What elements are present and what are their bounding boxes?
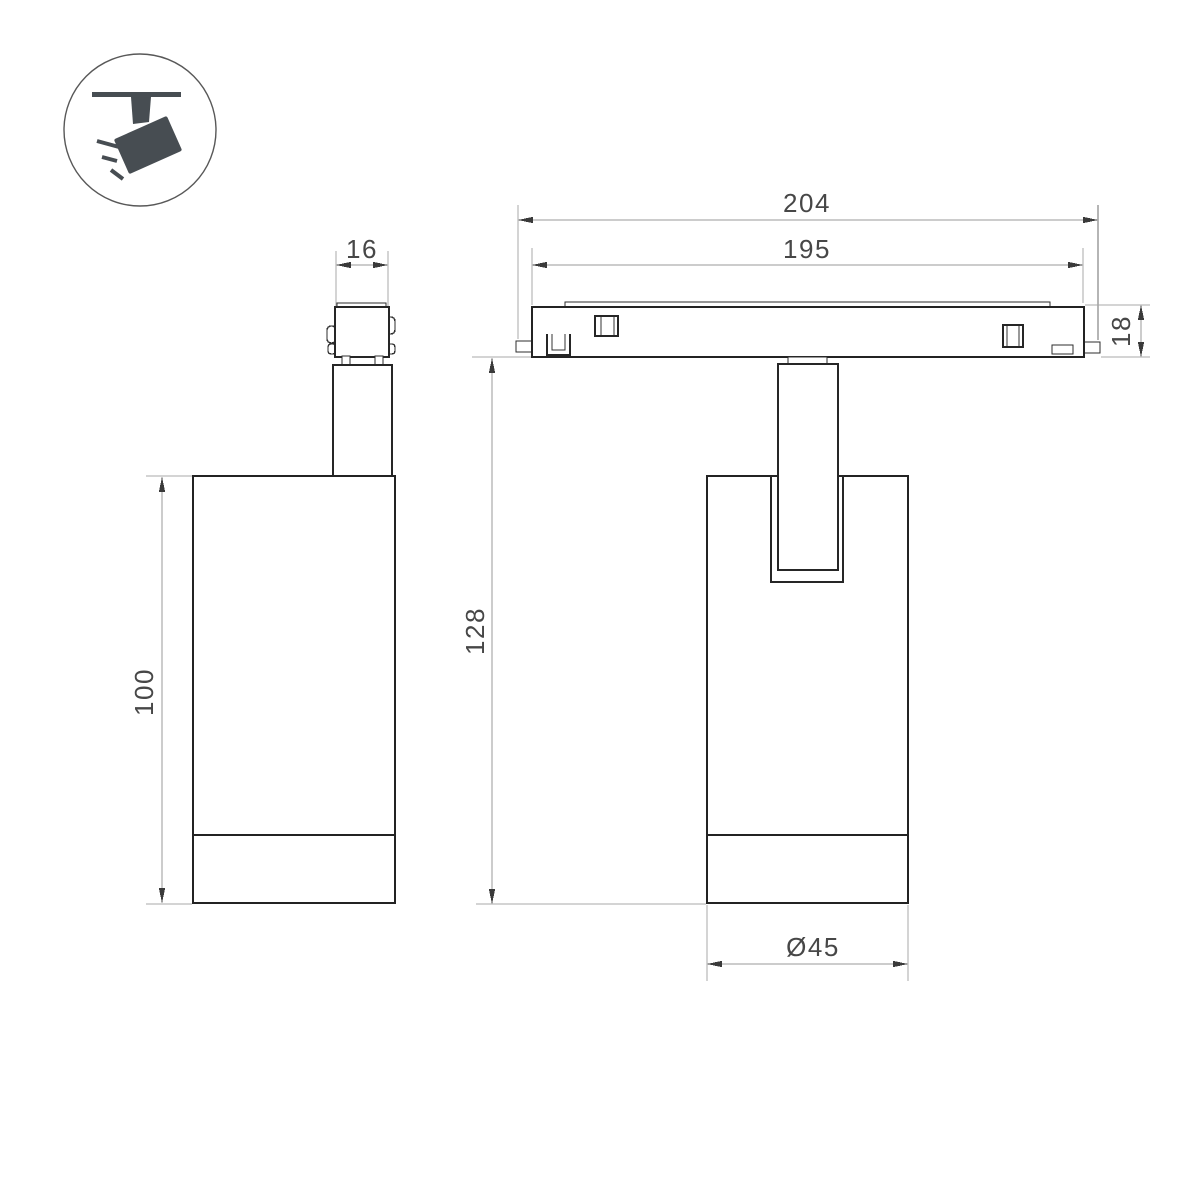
dimension-value: 16: [346, 234, 378, 264]
dimension-value: 100: [129, 668, 159, 716]
suspension-arm-front: [778, 364, 838, 570]
track-slider-plate: [1052, 345, 1073, 354]
dimension-value: Ø45: [786, 932, 840, 962]
arrowhead-bottom: [159, 888, 165, 903]
dimension-body-diameter: Ø45: [707, 905, 908, 981]
arrowhead-left: [532, 262, 547, 268]
track-contact-block-right: [1003, 325, 1023, 347]
arrowhead-top: [489, 358, 495, 373]
dimension-suspension-height: 128: [460, 357, 706, 904]
side-view: [193, 303, 395, 903]
arrowhead-right: [893, 961, 908, 967]
track-end-tab-left: [516, 341, 533, 352]
dimension-value: 18: [1106, 315, 1136, 347]
technical-drawing: 16 204 195 18: [0, 0, 1200, 1200]
dimension-track-body: 195: [532, 234, 1083, 305]
dimension-drawing-page: 16 204 195 18: [0, 0, 1200, 1200]
track-end-tab-right: [1083, 342, 1100, 353]
track-adapter-body: [335, 307, 389, 357]
dimension-value: 128: [460, 607, 490, 655]
arrowhead-top: [159, 477, 165, 492]
arrowhead-bottom: [1138, 342, 1144, 357]
front-view: [516, 302, 1100, 903]
arrowhead-left: [518, 217, 533, 223]
dimension-value: 195: [783, 234, 831, 264]
lamp-body-side: [193, 476, 395, 903]
arrowhead-right: [1068, 262, 1083, 268]
ceiling-line-icon: [92, 92, 181, 97]
arrowhead-left: [707, 961, 722, 967]
dimension-body-height: 100: [129, 476, 192, 904]
arrowhead-top: [1138, 305, 1144, 320]
arrowhead-bottom: [489, 889, 495, 904]
product-icon: [64, 54, 216, 206]
suspension-arm-side: [333, 365, 392, 477]
arrowhead-right: [1083, 217, 1098, 223]
dimension-value: 204: [783, 188, 831, 218]
dimension-adapter-width: 16: [336, 234, 388, 306]
spotlight-stem-icon: [131, 97, 151, 124]
